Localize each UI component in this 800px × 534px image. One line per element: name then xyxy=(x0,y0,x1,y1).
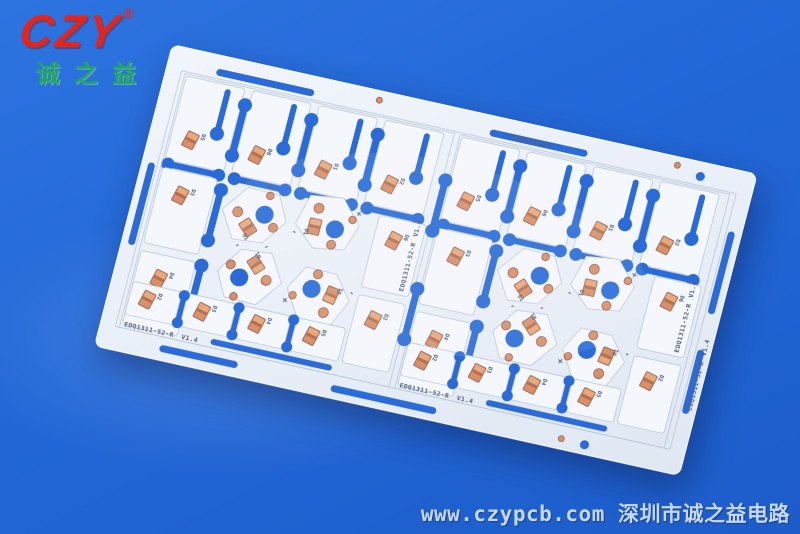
brand-logo: CZY® 诚之益 xyxy=(20,4,150,89)
brand-logo-text: CZY xyxy=(16,4,125,58)
pcb-panel-svg: D1 + - D5 xyxy=(94,44,758,476)
product-photo: CZY® 诚之益 xyxy=(0,0,800,534)
brand-logo-chinese: 诚之益 xyxy=(36,54,150,89)
pcb-panel: D1 + - D5 xyxy=(94,44,758,476)
company-name: 深圳市诚之益电路 xyxy=(618,502,790,526)
registered-trademark-icon: ® xyxy=(123,6,134,23)
footer-caption: www.czypcb.com 深圳市诚之益电路 xyxy=(421,498,790,528)
website-url: www.czypcb.com xyxy=(421,502,605,526)
